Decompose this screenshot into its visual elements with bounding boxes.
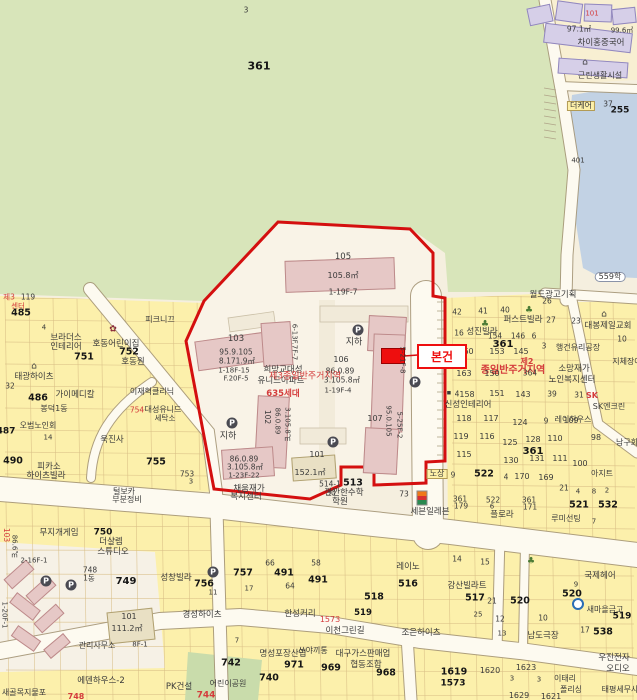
map-label: 755 — [146, 457, 166, 467]
map-label: 남도극장 — [527, 632, 558, 641]
map-label: 538 — [593, 627, 613, 637]
map-label: 516 — [398, 579, 418, 589]
parking-icon: P — [41, 576, 52, 587]
map-label: 748 — [68, 693, 85, 700]
map-label: 86.6㎡ — [11, 535, 18, 558]
map-label: 신성인테리어 — [445, 401, 492, 410]
map-label: 103 — [2, 528, 10, 542]
map-label: 루미선팅 — [551, 515, 580, 523]
map-label: 105 — [335, 253, 351, 262]
map-label: 40 — [500, 306, 510, 314]
map-label: 169 — [538, 474, 553, 482]
map-label: 401 — [571, 158, 584, 165]
map-label: PK건설 — [166, 683, 192, 692]
map-label: F.20F-5 — [223, 376, 248, 383]
map-label: 2-16F-1 — [21, 558, 48, 565]
map-label: 968 — [376, 668, 396, 678]
map-label: 42 — [452, 308, 462, 316]
map-label: 3 — [510, 676, 514, 683]
map-label: 1620 — [480, 667, 500, 675]
map-label: 98 — [591, 434, 601, 442]
map-label: 8.171.9㎡ — [219, 357, 255, 365]
map-label: 744 — [197, 692, 216, 700]
map-label: 1-19F-7 — [329, 288, 358, 296]
map-label: 스튜디오 — [97, 548, 128, 557]
map-label: 월드광고기획 — [530, 291, 577, 300]
park-parcel-361: 361 — [248, 61, 271, 72]
map-label: 756 — [194, 579, 214, 589]
map-label: 749 — [116, 577, 137, 587]
map-label: 11 — [209, 590, 218, 597]
map-label: 41 — [478, 307, 488, 315]
map-label: 757 — [233, 568, 253, 578]
map-label: 피크니끄 — [145, 316, 174, 324]
map-label: 559학 — [595, 272, 626, 282]
map-label: 조은하이츠 — [401, 629, 440, 638]
house-icon: ⌂ — [601, 311, 607, 320]
map-label: 지하 — [220, 433, 237, 442]
map-label: 1573 — [440, 680, 465, 689]
map-label: 486 — [28, 393, 48, 403]
map-label: 152.1㎡ — [295, 469, 326, 477]
map-label: 487 — [0, 428, 15, 437]
map-label: 171 — [523, 503, 537, 511]
map-label: 더케어 — [567, 101, 595, 111]
map-label: 6 — [532, 332, 537, 340]
map-label: 5-21F-8 — [399, 347, 406, 374]
map-label: SK엔크린 — [593, 403, 625, 411]
map-label: 485 — [11, 308, 31, 318]
map-label: 66 — [265, 559, 275, 567]
map-label: 153 — [489, 348, 504, 356]
map-label: 학원 — [332, 498, 348, 507]
map-label: 3 — [537, 677, 541, 684]
map-label: 255 — [611, 107, 630, 116]
map-label: 107 — [367, 415, 382, 423]
map-label: 23 — [571, 317, 581, 325]
map-label: 754 — [130, 406, 144, 414]
map-label: 124 — [512, 419, 527, 427]
parking-icon: P — [353, 325, 364, 336]
map-label: 520 — [510, 596, 530, 606]
map-label: 우진전자 — [598, 654, 629, 663]
map-label: 27 — [546, 316, 556, 324]
seven-icon — [417, 491, 428, 506]
map-label: 1623 — [516, 664, 536, 672]
map-label: 1-19F-4 — [325, 388, 352, 395]
map-label: 519 — [354, 609, 372, 618]
map-label: 21 — [559, 484, 569, 492]
map-label: 179 — [454, 502, 468, 510]
map-label: 1573 — [320, 616, 340, 624]
map-label: 지하 — [346, 339, 363, 348]
subject-callout: 본건 — [417, 344, 467, 369]
map-label: 1동 — [83, 574, 95, 582]
map-label: 969 — [321, 663, 341, 673]
map-label: 1619 — [441, 667, 467, 677]
map-label: 이태리 — [554, 675, 576, 683]
map-label: 호동원 — [121, 358, 144, 367]
map-label: 세탁소 — [155, 414, 176, 422]
tree-icon: ♣ — [481, 321, 489, 330]
map-label: 가이메디칼 — [55, 391, 94, 400]
house-icon: ⌂ — [582, 59, 588, 68]
map-label: 31 — [574, 391, 584, 399]
parking-icon: P — [66, 580, 77, 591]
map-label: 1-18F-15 — [218, 368, 249, 375]
cadastral-map: 336110197.1㎡99.6㎡차이홍중국어근린생활시설더케어37255401… — [0, 0, 637, 700]
map-label: 4 — [42, 325, 46, 332]
map-label: 491 — [274, 568, 294, 578]
map-label: 150 — [484, 370, 499, 378]
map-label: 7 — [592, 519, 596, 526]
map-label: 517 — [465, 593, 485, 603]
map-label: 490 — [3, 456, 23, 466]
map-label: 성창빌라 — [160, 574, 191, 583]
map-label: 태광하이츠 — [14, 373, 53, 382]
map-label: 13 — [498, 631, 507, 638]
map-label: 14 — [44, 435, 53, 442]
map-label: 17 — [580, 626, 590, 634]
map-label: 9 — [451, 471, 456, 479]
map-label: 레이하우스 — [555, 416, 592, 424]
map-label: 103 — [228, 335, 244, 344]
map-label: 131 — [529, 455, 544, 463]
map-label: 116 — [479, 433, 494, 441]
map-label: 5-25F-2 — [396, 412, 403, 439]
map-label: 145 — [513, 348, 528, 356]
map-label: 1621 — [541, 693, 561, 700]
map-label: 노인복지센터 — [549, 376, 596, 385]
map-label: 관리사무소 — [79, 642, 116, 650]
map-label: 10 — [617, 335, 627, 343]
map-label: 12 — [495, 615, 505, 623]
map-label: 111.2㎡ — [112, 625, 143, 633]
map-label: 519 — [613, 613, 632, 622]
map-label: 105.8㎡ — [328, 272, 359, 280]
map-label: 130 — [503, 457, 518, 465]
map-label: 514-1 — [319, 480, 341, 488]
map-label: 751 — [74, 352, 94, 362]
map-label: 이재혁클리닉 — [130, 388, 174, 396]
map-label: 518 — [364, 592, 384, 602]
subject-callout-label: 본건 — [431, 348, 453, 365]
map-label: 대봉제일교회 — [585, 322, 632, 331]
map-label: 64 — [285, 582, 295, 590]
map-label: 3 — [189, 479, 193, 486]
map-label: 119 — [21, 293, 35, 301]
map-label: 21 — [487, 597, 497, 605]
map-label: 9 — [544, 417, 549, 425]
map-label: 한성커리 — [284, 610, 315, 619]
map-label: 102 — [263, 410, 271, 424]
map-label: 14 — [452, 555, 462, 563]
parking-icon: P — [410, 377, 421, 388]
road-name: 이천그린길 — [325, 627, 364, 636]
map-label: 73 — [399, 490, 409, 498]
map-label: 강산빌라트 — [447, 582, 486, 591]
map-label: 163 — [456, 370, 471, 378]
map-label: 101 — [309, 451, 324, 459]
bank-icon — [572, 598, 584, 610]
map-label: 쓰야끼통 — [298, 647, 327, 655]
map-label: 118 — [456, 415, 471, 423]
map-label: 2 — [605, 488, 609, 495]
map-label: 752 — [119, 347, 139, 357]
map-label: 491 — [308, 575, 328, 585]
map-label: 하이츠빌라 — [26, 472, 65, 481]
parking-icon: P — [227, 418, 238, 429]
household-count: 635세대 — [266, 390, 299, 399]
map-label: 1-20F-1 — [1, 602, 8, 629]
map-label: 3.105.8㎡ — [227, 463, 263, 471]
map-label: 3 — [542, 342, 547, 350]
map-label: 158 — [459, 391, 474, 399]
map-label: 86.0.89 — [274, 408, 281, 435]
map-label: 지체장애 — [612, 358, 637, 366]
map-label: 117 — [483, 415, 498, 423]
map-label: 99.6㎡ — [611, 28, 634, 35]
map-label: 6-13F.7F-7 — [291, 324, 298, 360]
tree-icon: ♣ — [525, 307, 533, 316]
children-park-label: 어린이공원 — [210, 680, 247, 688]
map-label: 아지트 — [591, 470, 613, 478]
map-label: 4 — [504, 473, 509, 481]
map-label: 58 — [311, 559, 321, 567]
map-label: 513 — [343, 478, 363, 488]
map-label: 1-23F-22 — [228, 473, 259, 480]
map-label: 봉덕1동 — [40, 405, 67, 413]
map-label: 100 — [572, 460, 587, 468]
house-icon: ⌂ — [31, 363, 37, 372]
parking-icon: P — [328, 437, 339, 448]
map-label: 복지센터 — [230, 493, 261, 502]
map-label: 폴리싱 — [560, 686, 582, 694]
map-label: 106 — [333, 356, 348, 364]
map-label: 제3 — [3, 293, 15, 301]
map-label: 128 — [525, 436, 540, 444]
map-label: 25 — [474, 612, 483, 619]
lock-icon: ▪ — [447, 390, 452, 397]
map-label: 125 — [502, 439, 517, 447]
map-label: 364 — [523, 369, 537, 377]
map-label: 15 — [480, 558, 490, 566]
map-label: 119 — [453, 433, 468, 441]
map-label: 레이노 — [396, 563, 419, 572]
map-label: 971 — [284, 660, 304, 670]
map-label: 3 — [244, 6, 249, 14]
map-label: 10 — [538, 614, 548, 622]
street-parking-label: 노상 — [427, 469, 448, 479]
map-label: 39 — [547, 390, 557, 398]
map-label: 151 — [489, 390, 504, 398]
map-label: 태평세무사 — [602, 686, 637, 694]
parking-icon: P — [208, 567, 219, 578]
map-label: 95.0.105 — [385, 405, 392, 436]
map-label: 플로라 — [490, 511, 513, 520]
seven-eleven-label: 세븐일레븐 — [410, 508, 449, 517]
label-layer: 336110197.1㎡99.6㎡차이홍중국어근린생활시설더케어37255401… — [0, 0, 637, 700]
map-label: 521 — [569, 500, 589, 510]
map-label: 7 — [235, 638, 239, 645]
map-label: 퍼스트빌라 — [503, 316, 542, 325]
map-label: 차이홍중국어 — [578, 39, 625, 48]
map-label: 무지개게임 — [39, 529, 78, 538]
map-label: 97.1㎡ — [567, 25, 591, 33]
map-label: 101 — [121, 613, 136, 621]
map-label: 부분정비 — [112, 496, 141, 504]
map-label: 욱진사 — [100, 436, 123, 445]
sk-logo: SK — [586, 392, 598, 400]
map-label: 111 — [552, 455, 567, 463]
map-label: 101 — [585, 11, 598, 18]
map-label: 1629 — [509, 692, 529, 700]
map-label: 경성하이츠 — [182, 611, 221, 620]
map-label: 3.105.8㎡ — [284, 407, 291, 441]
map-label: 143 — [515, 391, 530, 399]
map-label: 오범노인회 — [20, 422, 57, 430]
map-label: 오디오 — [606, 665, 629, 674]
map-label: 110 — [547, 435, 562, 443]
map-label: 인테리어 — [50, 343, 81, 352]
map-label: 4 — [576, 489, 580, 496]
map-label: 740 — [259, 673, 279, 683]
map-label: 8 — [592, 489, 596, 496]
map-label: 532 — [598, 500, 618, 510]
map-label: 행건유리공장 — [556, 344, 600, 352]
map-label: 대구가스판매업 — [336, 650, 391, 659]
map-label: 남구회 — [616, 439, 637, 447]
map-label: 17 — [245, 586, 254, 593]
zoning-label: 제3종일반주거지역 — [269, 373, 341, 382]
map-label: 에덴하우스-2 — [77, 677, 125, 686]
map-label: 32 — [5, 382, 15, 390]
map-label: 더샬렘 — [99, 538, 122, 547]
map-label: 742 — [221, 658, 241, 668]
map-label: 16 — [454, 329, 464, 337]
flower-icon: ✿ — [109, 326, 117, 335]
tree-icon: ♣ — [527, 558, 535, 567]
map-label: 115 — [456, 451, 471, 459]
map-label: 국제헤어 — [584, 572, 615, 581]
map-label: 522 — [474, 469, 494, 479]
map-label: 근린생활시설 — [578, 72, 622, 80]
map-label: 8F-1 — [132, 642, 147, 649]
map-label: 새골목지물포 — [2, 689, 46, 697]
map-label: 95.9.105 — [219, 348, 252, 356]
map-label: 26 — [542, 297, 552, 305]
map-label: 170 — [514, 473, 529, 481]
map-label: 소망재가 — [558, 365, 589, 374]
